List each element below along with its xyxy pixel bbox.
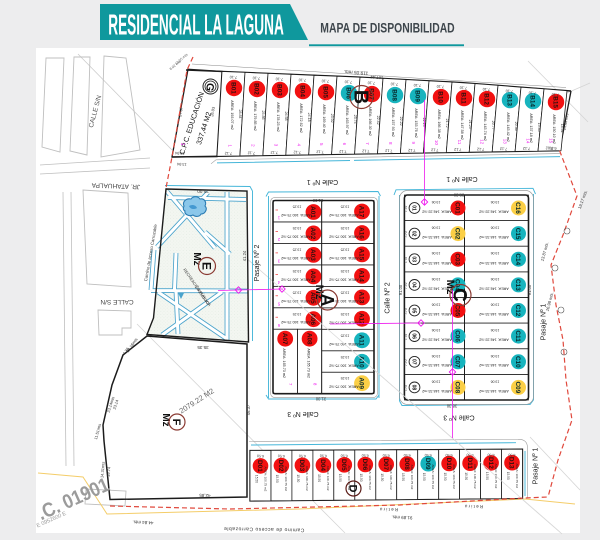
svg-text:C06: C06 <box>454 330 461 342</box>
svg-text:19.06: 19.06 <box>432 200 441 204</box>
svg-text:B04: B04 <box>299 85 306 97</box>
svg-text:7.70: 7.70 <box>404 359 408 366</box>
svg-text:13.94: 13.94 <box>177 162 187 167</box>
svg-text:07: 07 <box>411 359 417 365</box>
svg-text:14: 14 <box>526 138 531 144</box>
svg-text:7.10: 7.10 <box>322 79 330 84</box>
svg-text:AREA: 160.75 m2: AREA: 160.75 m2 <box>281 277 311 281</box>
svg-text:19.06: 19.06 <box>432 379 441 383</box>
svg-text:42,85: 42,85 <box>199 493 211 498</box>
svg-text:AREA: 160.75 m2: AREA: 160.75 m2 <box>329 363 359 367</box>
svg-text:AREA: 100.75 m2: AREA: 100.75 m2 <box>326 466 330 491</box>
svg-text:AREA: 148.33 m2: AREA: 148.33 m2 <box>422 235 452 239</box>
svg-text:19.25: 19.25 <box>293 269 302 273</box>
svg-text:7.12: 7.12 <box>500 146 508 151</box>
svg-text:44.84 mts.: 44.84 mts. <box>132 520 153 526</box>
svg-text:7.10: 7.10 <box>253 76 261 81</box>
svg-text:41.24: 41.24 <box>242 250 247 261</box>
svg-text:19.25: 19.25 <box>341 290 350 294</box>
svg-text:19.06: 19.06 <box>491 277 500 281</box>
svg-text:C14: C14 <box>514 253 521 265</box>
svg-text:7.70: 7.70 <box>404 308 408 315</box>
svg-text:25.86: 25.86 <box>261 111 265 120</box>
svg-text:31.00: 31.00 <box>312 198 323 203</box>
svg-text:AREA: 160.75 m2: AREA: 160.75 m2 <box>329 256 359 260</box>
svg-text:19.25: 19.25 <box>293 290 302 294</box>
svg-text:AREA: 148.33 m2: AREA: 148.33 m2 <box>479 389 509 393</box>
svg-text:B13: B13 <box>506 94 513 106</box>
svg-text:6.50: 6.50 <box>403 453 410 457</box>
svg-text:AREA: 100.75 m2: AREA: 100.75 m2 <box>368 465 372 490</box>
svg-text:7.70: 7.70 <box>404 334 408 341</box>
svg-text:D12: D12 <box>487 457 494 469</box>
svg-text:6.50: 6.50 <box>362 453 369 457</box>
svg-text:AREA: 165.73 m2: AREA: 165.73 m2 <box>307 348 311 378</box>
svg-text:AREA: 100.75 m2: AREA: 100.75 m2 <box>305 466 309 491</box>
svg-text:7.10: 7.10 <box>437 84 445 89</box>
svg-text:AREA: 100.75 m2: AREA: 100.75 m2 <box>389 465 393 490</box>
svg-text:19.06: 19.06 <box>432 277 441 281</box>
svg-text:6.50: 6.50 <box>487 453 494 457</box>
svg-text:B01: B01 <box>230 82 237 94</box>
svg-text:19.06: 19.06 <box>432 251 441 255</box>
svg-text:B03: B03 <box>276 84 283 96</box>
svg-text:7.12: 7.12 <box>339 149 347 154</box>
svg-text:Calle Nº 3: Calle Nº 3 <box>287 410 318 417</box>
svg-text:B: B <box>349 90 371 104</box>
svg-text:7.12: 7.12 <box>454 147 462 152</box>
svg-text:08: 08 <box>411 385 417 391</box>
svg-text:19.06: 19.06 <box>432 354 441 358</box>
svg-text:C15: C15 <box>514 228 521 240</box>
svg-text:B12: B12 <box>483 93 490 105</box>
svg-text:E: E <box>200 262 214 270</box>
svg-text:AREA: 160.75 m2: AREA: 160.75 m2 <box>329 385 359 389</box>
svg-text:D02: D02 <box>277 460 284 472</box>
svg-text:AREA: 193.07 m2: AREA: 193.07 m2 <box>230 100 234 130</box>
svg-text:AREA: 100.75 m2: AREA: 100.75 m2 <box>410 465 414 490</box>
svg-text:31.00: 31.00 <box>315 396 326 401</box>
svg-text:AREA: 143.74 m2: AREA: 143.74 m2 <box>483 111 487 141</box>
svg-text:C05: C05 <box>454 305 461 317</box>
svg-text:7.12: 7.12 <box>385 148 393 153</box>
svg-text:107,44: 107,44 <box>370 75 384 81</box>
svg-text:19.06: 19.06 <box>432 303 441 307</box>
svg-text:AREA: 163.97 m2: AREA: 163.97 m2 <box>345 105 349 135</box>
svg-text:38.30: 38.30 <box>446 404 457 409</box>
svg-text:B15: B15 <box>552 96 559 108</box>
svg-text:B10: B10 <box>437 91 444 103</box>
svg-text:A: A <box>317 294 337 307</box>
svg-text:R e t i r o: R e t i r o <box>464 504 483 509</box>
svg-text:D05: D05 <box>340 459 347 471</box>
svg-text:A08: A08 <box>305 333 312 345</box>
svg-text:19.25: 19.25 <box>293 312 302 316</box>
svg-text:AREA: 157.93 m2: AREA: 157.93 m2 <box>391 107 395 137</box>
svg-text:D06: D06 <box>361 459 368 471</box>
svg-text:AREA: 148.33 m2: AREA: 148.33 m2 <box>479 286 509 290</box>
svg-text:7.70: 7.70 <box>404 283 408 290</box>
svg-text:24.18: 24.18 <box>307 113 311 122</box>
svg-text:AREA: 148.33 m2: AREA: 148.33 m2 <box>479 338 509 342</box>
svg-text:D04: D04 <box>319 459 326 471</box>
svg-text:6.50: 6.50 <box>341 453 348 457</box>
svg-text:46.37: 46.37 <box>246 404 251 415</box>
svg-text:AREA: 179.85 m2: AREA: 179.85 m2 <box>253 101 257 131</box>
svg-text:AREA: 100.75 m2: AREA: 100.75 m2 <box>452 464 456 489</box>
svg-text:AREA: 160.75 m2: AREA: 160.75 m2 <box>281 256 311 260</box>
svg-text:7.10: 7.10 <box>460 85 468 90</box>
svg-text:22.42: 22.42 <box>376 116 380 125</box>
svg-text:AREA: 148.33 m2: AREA: 148.33 m2 <box>479 261 509 265</box>
svg-text:19.25: 19.25 <box>341 247 350 251</box>
svg-text:AREA: 160.75 m2: AREA: 160.75 m2 <box>281 213 311 217</box>
svg-text:C03: C03 <box>454 253 461 265</box>
svg-text:C01: C01 <box>454 202 461 214</box>
svg-text:AREA: 160.75 m2: AREA: 160.75 m2 <box>329 235 359 239</box>
svg-text:19.25: 19.25 <box>341 205 350 209</box>
svg-text:15.50: 15.50 <box>359 474 363 482</box>
svg-text:15.50: 15.50 <box>296 474 300 482</box>
svg-text:7.70: 7.70 <box>404 257 408 264</box>
svg-text:C09: C09 <box>514 382 521 394</box>
svg-text:7.12: 7.12 <box>270 150 278 155</box>
svg-text:6.50: 6.50 <box>320 453 327 457</box>
svg-text:AREA: 143.42 m2: AREA: 143.42 m2 <box>506 112 510 142</box>
svg-text:91.00: 91.00 <box>527 284 532 295</box>
svg-text:C07: C07 <box>454 356 461 368</box>
svg-text:7.70: 7.70 <box>404 385 408 392</box>
svg-text:AREA: 165.73 m2: AREA: 165.73 m2 <box>282 348 286 378</box>
svg-text:AREA: 148.33 m2: AREA: 148.33 m2 <box>422 338 452 342</box>
svg-text:AREA: 160.75 m2: AREA: 160.75 m2 <box>281 299 311 303</box>
svg-text:15.50: 15.50 <box>506 472 510 480</box>
svg-text:7.12: 7.12 <box>408 148 416 153</box>
svg-text:AREA: 166.38 m2: AREA: 166.38 m2 <box>437 109 441 139</box>
svg-text:C16: C16 <box>514 202 521 214</box>
svg-text:13: 13 <box>503 139 508 145</box>
svg-text:05: 05 <box>411 308 417 314</box>
svg-text:AREA: 100.75 m2: AREA: 100.75 m2 <box>473 464 477 489</box>
svg-text:13.94: 13.94 <box>175 151 185 156</box>
svg-text:Pasaje Nº 2: Pasaje Nº 2 <box>254 245 261 282</box>
svg-text:7.12: 7.12 <box>248 150 256 155</box>
svg-text:19.06: 19.06 <box>491 379 500 383</box>
svg-text:Calle Nº 3: Calle Nº 3 <box>443 414 474 421</box>
svg-text:A07: A07 <box>281 333 288 345</box>
svg-text:19.25: 19.25 <box>293 247 302 251</box>
svg-text:D09: D09 <box>424 458 431 470</box>
svg-text:Calle Nº 1: Calle Nº 1 <box>307 178 338 185</box>
svg-text:15.50: 15.50 <box>443 473 447 481</box>
svg-text:01: 01 <box>411 205 417 211</box>
svg-text:D10: D10 <box>445 458 452 470</box>
svg-text:19.25: 19.25 <box>293 205 302 209</box>
svg-text:AREA: 148.33 m2: AREA: 148.33 m2 <box>479 235 509 239</box>
svg-text:38.30: 38.30 <box>453 193 464 198</box>
svg-text:7.10: 7.10 <box>391 82 399 87</box>
svg-text:10: 10 <box>434 140 439 146</box>
svg-text:19.06: 19.06 <box>491 303 500 307</box>
svg-text:C10: C10 <box>514 356 521 368</box>
svg-text:CALLE S/N: CALLE S/N <box>100 298 134 305</box>
svg-text:7.10: 7.10 <box>299 78 307 83</box>
svg-text:AREA: 100.75 m2: AREA: 100.75 m2 <box>431 464 435 489</box>
svg-text:AREA: 148.33 m2: AREA: 148.33 m2 <box>422 261 452 265</box>
svg-text:B11: B11 <box>460 92 467 104</box>
svg-text:19.06: 19.06 <box>432 226 441 230</box>
svg-text:04: 04 <box>411 282 417 288</box>
svg-text:15.50: 15.50 <box>338 474 342 482</box>
svg-text:7.10: 7.10 <box>483 87 491 92</box>
svg-text:6.50: 6.50 <box>445 453 452 457</box>
svg-text:19.25: 19.25 <box>341 312 350 316</box>
svg-text:19.25: 19.25 <box>341 333 350 337</box>
svg-text:7.10: 7.10 <box>230 75 238 80</box>
svg-text:AREA: 100.75 m2: AREA: 100.75 m2 <box>515 463 519 488</box>
svg-text:02: 02 <box>411 231 417 237</box>
svg-text:19.06: 19.06 <box>491 251 500 255</box>
svg-text:D: D <box>347 485 359 493</box>
svg-text:7.12: 7.12 <box>293 150 301 155</box>
svg-text:6.50: 6.50 <box>278 454 285 458</box>
svg-text:F: F <box>170 419 182 426</box>
svg-text:B09: B09 <box>414 90 421 102</box>
svg-text:7.10: 7.10 <box>345 79 353 84</box>
svg-text:AREA: 160.75 m2: AREA: 160.75 m2 <box>329 213 359 217</box>
svg-text:D01: D01 <box>256 460 263 472</box>
svg-text:6.50: 6.50 <box>257 454 264 458</box>
svg-text:B14: B14 <box>529 95 536 107</box>
svg-text:AREA: 100.75 m2: AREA: 100.75 m2 <box>284 466 288 491</box>
svg-text:C: C <box>449 288 470 302</box>
svg-text:15.50: 15.50 <box>401 473 405 481</box>
svg-text:7.10: 7.10 <box>552 92 560 97</box>
svg-text:C12: C12 <box>514 305 521 317</box>
svg-text:19.25: 19.25 <box>293 226 302 230</box>
svg-text:7.10: 7.10 <box>529 90 537 95</box>
svg-text:Calle Nº 2: Calle Nº 2 <box>385 282 392 313</box>
svg-text:AREA: 160.75 m2: AREA: 160.75 m2 <box>281 320 311 324</box>
svg-text:7.12: 7.12 <box>477 147 485 152</box>
svg-text:AREA: 148.33 m2: AREA: 148.33 m2 <box>422 312 452 316</box>
svg-text:91.89 mts.: 91.89 mts. <box>391 515 412 521</box>
svg-text:Pasaje Nº 1: Pasaje Nº 1 <box>533 448 540 485</box>
svg-text:7.10: 7.10 <box>414 83 422 88</box>
svg-text:AREA: 172.62 m2: AREA: 172.62 m2 <box>299 103 303 133</box>
svg-text:Calle Nº 1: Calle Nº 1 <box>446 175 477 182</box>
svg-text:7.10: 7.10 <box>368 80 376 85</box>
svg-text:12: 12 <box>480 139 485 145</box>
svg-text:7.12: 7.12 <box>431 147 439 152</box>
svg-text:AREA: 148.33 m2: AREA: 148.33 m2 <box>479 363 509 367</box>
svg-text:06: 06 <box>411 333 417 339</box>
svg-text:D03: D03 <box>298 459 305 471</box>
svg-text:91.00: 91.00 <box>398 284 403 295</box>
svg-text:19.06: 19.06 <box>491 328 500 332</box>
svg-text:19.25: 19.25 <box>341 376 350 380</box>
svg-text:7.70: 7.70 <box>404 231 408 238</box>
svg-text:15.50: 15.50 <box>485 472 489 480</box>
svg-text:6.50: 6.50 <box>424 453 431 457</box>
svg-text:19.25: 19.25 <box>341 355 350 359</box>
svg-text:6.50: 6.50 <box>299 454 306 458</box>
svg-text:7.10: 7.10 <box>276 77 284 82</box>
svg-text:15.50: 15.50 <box>464 472 468 480</box>
svg-text:11: 11 <box>457 140 462 145</box>
svg-text:7.70: 7.70 <box>404 206 408 213</box>
svg-text:RESIDENCIAL LA LAGUNA: RESIDENCIAL LA LAGUNA <box>108 8 284 41</box>
svg-text:D08: D08 <box>403 458 410 470</box>
svg-text:6.50: 6.50 <box>382 453 389 457</box>
svg-text:6.80: 6.80 <box>549 146 557 151</box>
svg-text:AREA: 148.33 m2: AREA: 148.33 m2 <box>479 210 509 214</box>
svg-text:AREA: 148.33 m2: AREA: 148.33 m2 <box>422 389 452 393</box>
svg-text:AREA: 160.75 m2: AREA: 160.75 m2 <box>281 234 311 238</box>
svg-text:AREA: 169.40 m2: AREA: 169.40 m2 <box>322 104 326 134</box>
svg-text:15: 15 <box>549 138 554 144</box>
svg-text:AREA: 178.23 m2: AREA: 178.23 m2 <box>276 102 280 132</box>
svg-text:D11: D11 <box>466 458 473 470</box>
svg-text:C11: C11 <box>514 330 521 342</box>
svg-text:B05: B05 <box>322 86 329 98</box>
svg-text:19.74: 19.74 <box>106 466 112 477</box>
svg-text:23.74: 23.74 <box>353 115 357 124</box>
svg-text:35.35: 35.35 <box>197 345 209 350</box>
svg-text:C13: C13 <box>514 279 521 291</box>
svg-text:19.06: 19.06 <box>491 226 500 230</box>
svg-text:19.25: 19.25 <box>341 226 350 230</box>
svg-text:25.00: 25.00 <box>197 189 209 194</box>
svg-text:15.50: 15.50 <box>380 473 384 481</box>
svg-text:7.12: 7.12 <box>225 151 233 156</box>
svg-text:15.50: 15.50 <box>254 475 258 483</box>
svg-text:6.50: 6.50 <box>508 453 515 457</box>
svg-text:D07: D07 <box>382 458 389 470</box>
svg-text:AREA: 148.33 m2: AREA: 148.33 m2 <box>422 210 452 214</box>
svg-text:7.10: 7.10 <box>506 89 514 94</box>
svg-text:AREA: 148.33 m2: AREA: 148.33 m2 <box>479 312 509 316</box>
svg-text:19.06: 19.06 <box>491 354 500 358</box>
svg-text:R e t i r o: R e t i r o <box>379 507 398 512</box>
svg-text:MAPA DE DISPONIBILIDAD: MAPA DE DISPONIBILIDAD <box>320 20 455 36</box>
svg-text:7.12: 7.12 <box>362 149 370 154</box>
svg-text:15.50: 15.50 <box>317 474 321 482</box>
svg-text:C02: C02 <box>454 228 461 240</box>
svg-text:1: 1 <box>179 143 185 146</box>
svg-text:7.12: 7.12 <box>316 149 324 154</box>
svg-text:AREA: 100.75 m2: AREA: 100.75 m2 <box>263 467 267 492</box>
svg-text:AREA: 160.75 m2: AREA: 160.75 m2 <box>329 277 359 281</box>
svg-text:19.06: 19.06 <box>432 328 441 332</box>
svg-text:15.50: 15.50 <box>275 475 279 483</box>
svg-text:B02: B02 <box>253 83 260 95</box>
svg-text:B08: B08 <box>391 89 398 101</box>
svg-text:22.22: 22.22 <box>399 117 403 126</box>
svg-text:19.06: 19.06 <box>491 200 500 204</box>
svg-text:AREA: 148.33 m2: AREA: 148.33 m2 <box>422 363 452 367</box>
svg-text:AREA: 147.58 m2: AREA: 147.58 m2 <box>460 110 464 140</box>
svg-text:23.02: 23.02 <box>330 114 334 123</box>
svg-text:D13: D13 <box>508 457 515 469</box>
svg-text:26.58: 26.58 <box>284 112 288 121</box>
svg-text:C08: C08 <box>454 382 461 394</box>
svg-text:AREA: 166.30 m2: AREA: 166.30 m2 <box>368 106 372 136</box>
svg-text:7.12: 7.12 <box>523 146 531 151</box>
svg-text:AREA: 153.76 m2: AREA: 153.76 m2 <box>414 108 418 138</box>
svg-text:03: 03 <box>411 256 417 262</box>
svg-text:15.50: 15.50 <box>422 473 426 481</box>
svg-text:28.84: 28.84 <box>238 110 242 119</box>
svg-text:19.25: 19.25 <box>341 269 350 273</box>
